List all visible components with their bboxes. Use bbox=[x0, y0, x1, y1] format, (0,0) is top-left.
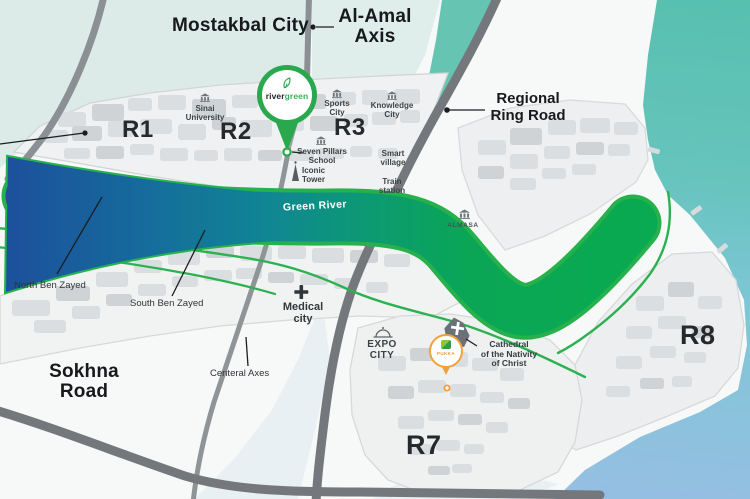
map-container: Mostakbal City Al‑Amal Axis ad Regional … bbox=[0, 0, 750, 499]
label-district-r8: R8 bbox=[680, 320, 716, 350]
rivergreen-pin-marker[interactable]: rivergreen · · · · · · · · bbox=[257, 65, 317, 125]
label-iconic-tower: Iconic Tower bbox=[302, 166, 325, 185]
label-knowledge-city: Knowledge City bbox=[371, 101, 414, 120]
label-smart-village: Smart village bbox=[381, 149, 406, 168]
label-district-r1: R1 bbox=[122, 117, 154, 144]
pukka-pin-marker[interactable]: PUKKA bbox=[429, 334, 463, 368]
map-canvas bbox=[0, 0, 750, 499]
label-cathedral: Cathedral of the Nativity of Christ bbox=[481, 340, 537, 369]
label-mostakbal-city: Mostakbal City bbox=[172, 16, 309, 36]
pukka-location-dot bbox=[444, 385, 449, 390]
pukka-pin-circle: PUKKA bbox=[429, 334, 463, 368]
rivergreen-logo: rivergreen · · · · · · · · bbox=[262, 70, 312, 120]
label-sports-city: Sports City bbox=[324, 99, 349, 118]
label-expo-city: EXPO CITY bbox=[367, 339, 396, 361]
label-al-amal-axis: Al‑Amal Axis bbox=[338, 7, 411, 48]
label-sokhna-road: Sokhna Road bbox=[49, 362, 119, 403]
label-district-r3: R3 bbox=[334, 115, 366, 142]
rivergreen-brand-text: rivergreen bbox=[266, 91, 309, 101]
label-regional-ring-road: Regional Ring Road bbox=[491, 91, 566, 124]
pukka-logo-icon bbox=[441, 340, 451, 349]
brand-green: green bbox=[285, 91, 309, 101]
label-north-ben-zayed: North Ben Zayed bbox=[14, 281, 86, 292]
label-seven-pillars-school: Seven Pillars School bbox=[297, 147, 347, 166]
rivergreen-pin-circle: rivergreen · · · · · · · · bbox=[257, 65, 317, 125]
label-district-r2: R2 bbox=[220, 119, 252, 146]
brand-river: river bbox=[266, 91, 285, 101]
leaf-icon bbox=[282, 77, 292, 90]
label-south-ben-zayed: South Ben Zayed bbox=[130, 299, 203, 310]
label-centeral-axes: Centeral Axes bbox=[210, 369, 269, 380]
pukka-label: PUKKA bbox=[437, 351, 455, 356]
label-medical-city: Medical city bbox=[283, 301, 323, 326]
rivergreen-tagline: · · · · · · · · bbox=[271, 102, 302, 106]
label-sinai-university: Sinai University bbox=[186, 104, 225, 123]
label-train-station: Train station bbox=[379, 177, 405, 196]
label-district-r7: R7 bbox=[406, 430, 442, 460]
label-almasa: ALMASA bbox=[447, 222, 478, 229]
